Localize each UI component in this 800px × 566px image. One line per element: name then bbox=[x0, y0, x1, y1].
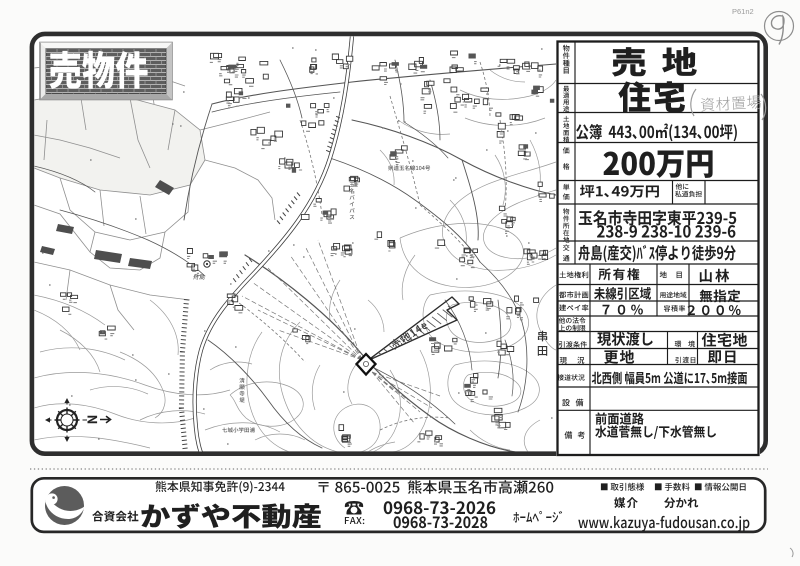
svg-text:P61n2: P61n2 bbox=[732, 7, 754, 16]
